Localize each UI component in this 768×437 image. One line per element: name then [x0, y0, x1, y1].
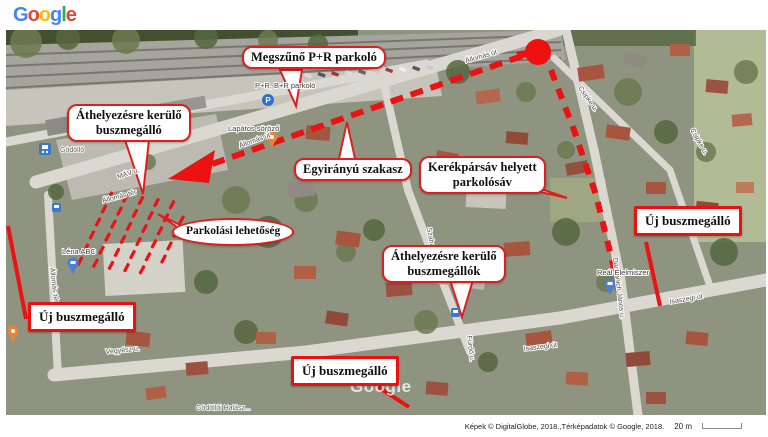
building: [685, 331, 708, 346]
tree: [557, 141, 575, 159]
building: [425, 381, 448, 396]
map-canvas[interactable]: P: [6, 30, 766, 415]
scale-bar: [702, 423, 742, 429]
tree: [234, 320, 258, 344]
tree: [654, 120, 678, 144]
logo-letter: e: [66, 4, 76, 26]
svg-text:P: P: [265, 96, 271, 105]
tree: [734, 60, 758, 84]
tree: [222, 186, 250, 214]
tree: [363, 219, 385, 241]
logo-letter: G: [13, 4, 28, 26]
building: [506, 131, 529, 145]
callout-egyiranyu-szakasz: Egyirányú szakasz: [294, 158, 412, 181]
building: [646, 182, 666, 194]
poi-label: Gödöllői Halász...: [196, 405, 251, 412]
building: [705, 79, 728, 94]
bus-stop-icon: [451, 308, 460, 317]
logo-letter: g: [50, 4, 61, 26]
tree: [552, 218, 580, 246]
footer-bar: Képek © DigitalGlobe, 2018.,Térképadatok…: [0, 415, 768, 437]
tree: [478, 352, 498, 372]
tree: [516, 82, 536, 102]
annotated-map-page: Google: [0, 0, 768, 437]
poi-label: Gödöllő: [60, 147, 84, 154]
logo-letter: o: [28, 4, 39, 26]
callout-uj-buszmegallo-also: Új buszmegálló: [291, 356, 399, 386]
logo-letter: o: [39, 4, 50, 26]
train-station-icon: [39, 143, 51, 155]
google-logo: Google: [13, 2, 76, 28]
building: [646, 392, 666, 404]
tree: [614, 78, 642, 106]
poi-label: Léna ABC: [62, 247, 96, 256]
scale-label: 20 m: [674, 422, 692, 431]
callout-megszuno-pr-parkolo: Megszűnő P+R parkoló: [242, 46, 386, 69]
building: [732, 113, 753, 127]
parking-icon: P: [262, 94, 274, 106]
callout-uj-buszmegallo-bal: Új buszmegálló: [28, 302, 136, 332]
callout-kerekparsav-parkolosav: Kerékpársáv helyett parkolósáv: [419, 156, 546, 194]
building: [504, 241, 531, 257]
building: [736, 182, 754, 193]
poi-label: Lapátos söröző: [228, 124, 279, 133]
building: [287, 181, 314, 199]
route-start-circle: [525, 39, 551, 65]
tree: [194, 270, 218, 294]
building: [256, 332, 276, 344]
tree: [48, 184, 64, 200]
building: [566, 371, 589, 386]
callout-athelyezesre-buszmegallok: Áthelyezésre kerülő buszmegállók: [382, 245, 506, 283]
building: [185, 361, 208, 376]
header-bar: Google: [0, 0, 768, 30]
building: [625, 351, 650, 367]
poi-label: Reál Élelmiszer: [597, 268, 650, 277]
building: [385, 281, 412, 297]
callout-uj-buszmegallo-jobb: Új buszmegálló: [634, 206, 742, 236]
map-attribution: Képek © DigitalGlobe, 2018.,Térképadatok…: [465, 422, 665, 431]
callout-parkolasi-lehetoseg: Parkolási lehetőség: [172, 218, 294, 246]
poi-label: P+R, B+R parkoló: [255, 81, 315, 90]
tree: [710, 238, 738, 266]
building: [294, 266, 316, 279]
tree: [414, 310, 438, 334]
transit-icon-small: [52, 203, 61, 212]
callout-athelyezesre-buszmegallo: Áthelyezésre kerülő buszmegálló: [67, 104, 191, 142]
building: [670, 44, 690, 56]
